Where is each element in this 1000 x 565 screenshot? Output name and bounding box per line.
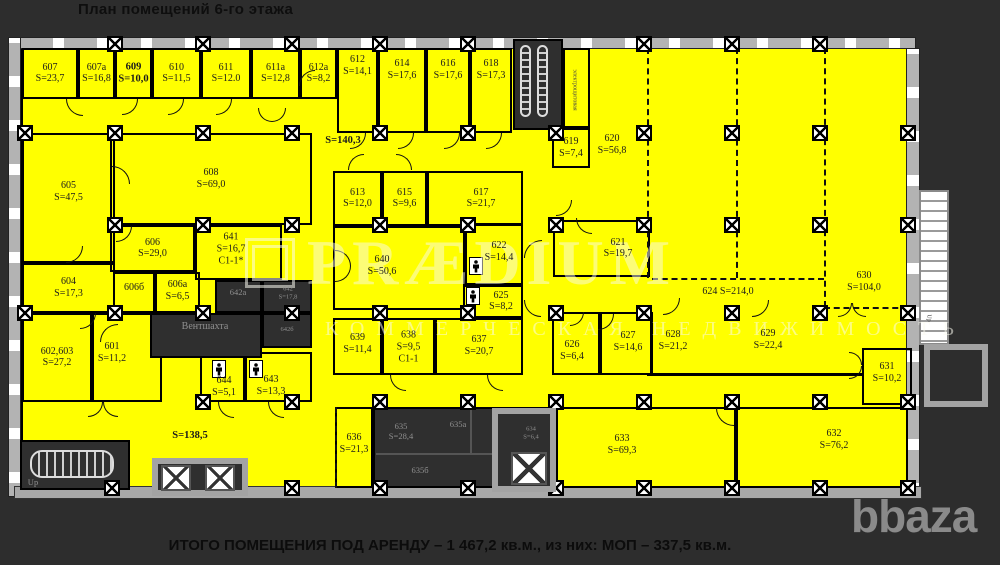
partition-dashed-line	[824, 48, 826, 307]
partition-dashed-line	[647, 48, 649, 278]
room-label-633: 633S=69,3	[608, 433, 637, 457]
column-marker-icon	[812, 394, 828, 410]
column-marker-icon	[195, 36, 211, 52]
partition-dashed-line	[652, 278, 824, 280]
column-marker-icon	[372, 394, 388, 410]
room-label-632: 632S=76,2	[820, 428, 849, 452]
column-marker-icon	[195, 394, 211, 410]
column-marker-icon	[104, 480, 120, 496]
column-marker-icon	[900, 125, 916, 141]
column-marker-icon	[284, 36, 300, 52]
plan-label: Вентшахта	[182, 321, 229, 333]
column-marker-icon	[460, 305, 476, 321]
column-marker-icon	[812, 305, 828, 321]
column-marker-icon	[195, 125, 211, 141]
room-label-629: 629S=22,4	[754, 328, 783, 352]
plan-label: 642a	[230, 287, 247, 297]
column-marker-icon	[900, 480, 916, 496]
column-marker-icon	[812, 217, 828, 233]
wall-segment	[647, 373, 826, 376]
column-marker-icon	[636, 480, 652, 496]
room-label-618: 618S=17,3	[477, 58, 506, 82]
plan-label: 635б	[411, 465, 428, 475]
column-marker-icon	[724, 305, 740, 321]
column-marker-icon	[107, 36, 123, 52]
plan-label: Up	[28, 477, 38, 487]
plan-label: 620S=56,8	[598, 133, 627, 157]
room-label-611a: 611aS=12,8	[261, 62, 290, 86]
column-marker-icon	[548, 305, 564, 321]
exterior-shaft	[924, 344, 988, 407]
plan-label: 635a	[450, 419, 467, 429]
plan-label: 634S=6,4	[523, 425, 538, 440]
room-label-626: 626S=6,4	[560, 339, 584, 363]
partition-dashed-line	[335, 407, 337, 488]
column-marker-icon	[195, 305, 211, 321]
room-label-637: 637S=20,7	[465, 334, 494, 358]
column-marker-icon	[724, 394, 740, 410]
room-633	[556, 407, 736, 488]
plan-label: Up	[924, 314, 931, 321]
elevator-car-icon	[205, 465, 235, 491]
room-label-606b: 606б	[124, 282, 144, 294]
column-marker-icon	[284, 217, 300, 233]
column-marker-icon	[372, 480, 388, 496]
column-marker-icon	[900, 394, 916, 410]
column-marker-icon	[372, 36, 388, 52]
column-marker-icon	[724, 480, 740, 496]
room-label-627: 627S=14,6	[614, 330, 643, 354]
total-area-summary: ИТОГО ПОМЕЩЕНИЯ ПОД АРЕНДУ – 1 467,2 кв.…	[0, 537, 900, 554]
room-label-643: 643S=13,3	[257, 374, 286, 398]
partition-dashed-line	[736, 48, 738, 278]
wall-windows-right	[906, 48, 920, 488]
page-title: План помещений 6-го этажа	[78, 1, 293, 18]
room-label-641: 641S=16,7C1-1*	[217, 231, 246, 266]
column-marker-icon	[460, 125, 476, 141]
elevator-car-icon	[161, 465, 191, 491]
floor-plan-image: План помещений 6-го этажа PRÆDIUM КОММЕР…	[0, 0, 1000, 565]
room-label-628: 628S=21,2	[659, 329, 688, 353]
column-marker-icon	[107, 217, 123, 233]
column-marker-icon	[107, 125, 123, 141]
column-marker-icon	[636, 36, 652, 52]
room-label-639: 639S=11,4	[343, 332, 371, 356]
wall-windows-left	[8, 37, 21, 497]
elevator-car-icon	[511, 452, 547, 485]
column-marker-icon	[900, 305, 916, 321]
column-marker-icon	[460, 480, 476, 496]
column-marker-icon	[724, 217, 740, 233]
plan-label: 642б	[280, 326, 293, 334]
column-marker-icon	[284, 305, 300, 321]
room-label-612a: 612aS=8,2	[307, 62, 331, 86]
room-label-606: 606S=29,0	[138, 237, 167, 261]
room-label-625: 625S=8,2	[489, 290, 513, 314]
column-marker-icon	[284, 125, 300, 141]
column-marker-icon	[636, 394, 652, 410]
room-label-607: 607S=23,7	[36, 62, 65, 86]
column-marker-icon	[724, 125, 740, 141]
column-marker-icon	[812, 36, 828, 52]
exterior-fire-stair	[919, 190, 949, 345]
room-label-605: 605S=47,5	[54, 180, 83, 204]
plan-label: S=138,5	[172, 430, 207, 442]
plan-label: 630S=104,0	[847, 270, 881, 294]
column-marker-icon	[17, 305, 33, 321]
room-label-631: 631S=10,2	[873, 361, 902, 385]
column-marker-icon	[372, 217, 388, 233]
room-label-621: 621S=19,7	[604, 237, 633, 261]
room-label-609: 609S=10,0	[118, 61, 148, 86]
room-label-636: 636S=21,3	[340, 432, 369, 456]
room-label-617: 617S=21,7	[467, 187, 496, 211]
room-label-606a: 606aS=6,5	[166, 279, 190, 303]
room-label-622: 622S=14,4	[485, 240, 514, 264]
room-label-616: 616S=17,6	[434, 58, 463, 82]
column-marker-icon	[17, 125, 33, 141]
column-marker-icon	[284, 394, 300, 410]
stair-flight-icon	[537, 45, 548, 117]
room-label-644: 644S=5,1	[212, 375, 236, 399]
column-marker-icon	[900, 217, 916, 233]
column-marker-icon	[460, 217, 476, 233]
partition-dashed-line	[824, 307, 908, 309]
room-label-612: 612S=14,1	[343, 54, 372, 78]
wc-person-icon	[466, 287, 480, 305]
column-marker-icon	[548, 217, 564, 233]
wc-person-icon	[469, 257, 483, 275]
plan-label: электрощитовая	[570, 69, 577, 110]
stair-flight-icon	[30, 450, 114, 478]
column-marker-icon	[812, 480, 828, 496]
wall-segment	[376, 453, 492, 455]
room-label-619: 619S=7,4	[559, 136, 583, 160]
plan-label: 635S=28,4	[389, 421, 413, 441]
room-label-604: 604S=17,3	[54, 276, 83, 300]
room-label-602-603: 602,603S=27,2	[41, 346, 74, 370]
room-640	[333, 226, 465, 310]
room-label-610: 610S=11,5	[162, 62, 190, 86]
room-label-601: 601S=11,2	[98, 341, 126, 365]
room-label-638: 638S=9,5C1-1	[397, 329, 421, 364]
column-marker-icon	[460, 36, 476, 52]
plan-label: 624 S=214,0	[702, 286, 753, 298]
column-marker-icon	[284, 480, 300, 496]
column-marker-icon	[724, 36, 740, 52]
room-label-611: 611S=12.0	[212, 62, 241, 86]
room-label-613: 613S=12,0	[343, 187, 372, 211]
room-label-608: 608S=69,0	[197, 167, 226, 191]
column-marker-icon	[636, 305, 652, 321]
plan-label: 642S=17,8	[279, 285, 298, 300]
column-marker-icon	[107, 305, 123, 321]
column-marker-icon	[636, 217, 652, 233]
column-marker-icon	[636, 125, 652, 141]
column-marker-icon	[460, 394, 476, 410]
wall-segment	[470, 410, 472, 454]
column-marker-icon	[195, 217, 211, 233]
stair-flight-icon	[520, 45, 531, 117]
room-label-640: 640S=50,6	[368, 254, 397, 278]
column-marker-icon	[372, 305, 388, 321]
column-marker-icon	[812, 125, 828, 141]
wall-segment	[650, 312, 653, 375]
room-label-614: 614S=17,6	[388, 58, 417, 82]
room-label-607a: 607aS=16,8	[82, 62, 111, 86]
column-marker-icon	[372, 125, 388, 141]
plan-label: S=140,3	[325, 135, 360, 147]
room-label-615: 615S=9,6	[393, 187, 417, 211]
